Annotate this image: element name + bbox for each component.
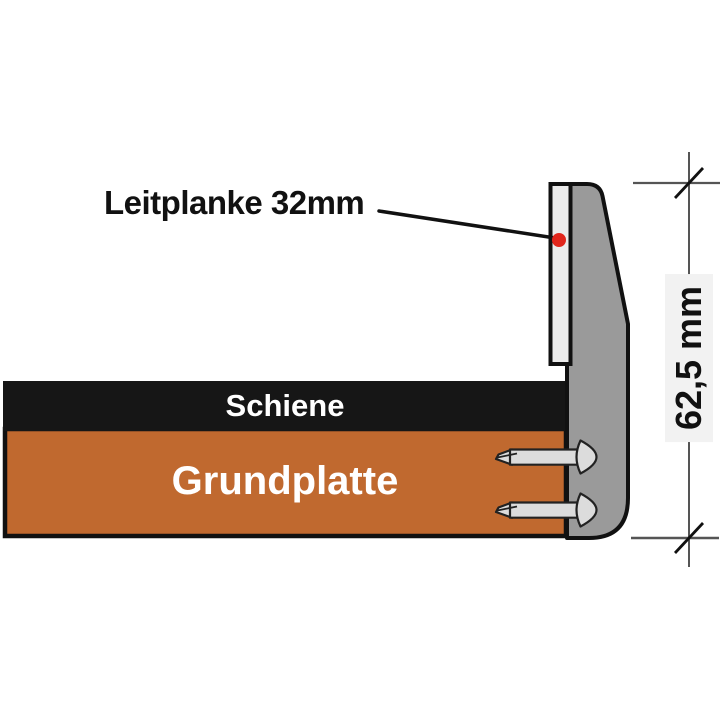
- screw-top-shaft: [510, 450, 581, 465]
- guardrail-label: Leitplanke 32mm: [104, 184, 364, 222]
- dimension-label: 62,5 mm: [665, 274, 713, 442]
- cross-section-diagram: Leitplanke 32mm Schiene Grundplatte 62,5…: [0, 0, 720, 720]
- base-plate-shape: [5, 429, 566, 536]
- post-shape: [567, 184, 628, 538]
- guardrail-strip-shape: [551, 184, 571, 364]
- rail-bar-shape: [3, 381, 567, 431]
- diagram-canvas: [0, 0, 720, 720]
- screw-bottom-shaft: [510, 503, 581, 518]
- leader-line: [379, 211, 555, 238]
- marker-dot-icon: [552, 233, 566, 247]
